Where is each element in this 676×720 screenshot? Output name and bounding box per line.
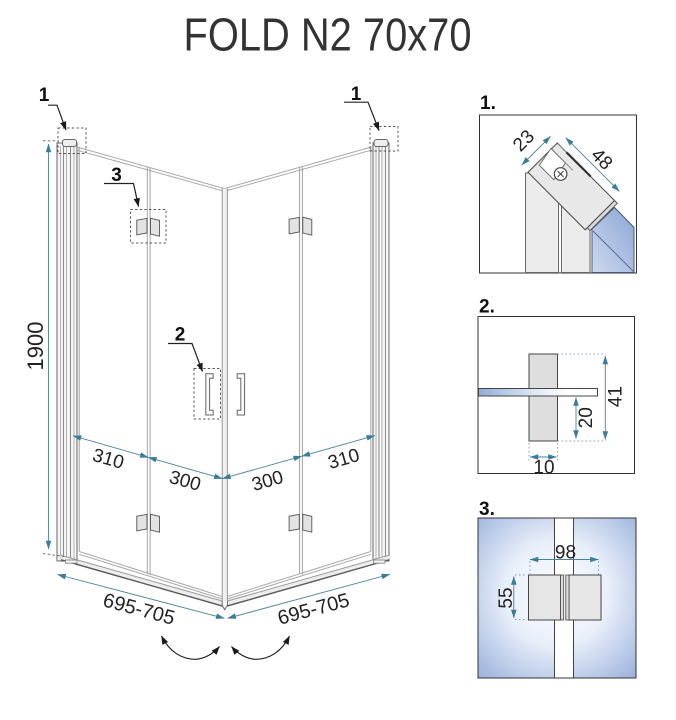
svg-text:1.: 1. [480, 93, 496, 114]
svg-text:3: 3 [111, 165, 122, 186]
svg-text:2: 2 [175, 325, 186, 346]
svg-text:310: 310 [326, 445, 362, 474]
svg-text:20: 20 [576, 407, 597, 428]
svg-text:FOLD N2 70x70: FOLD N2 70x70 [184, 9, 472, 61]
svg-text:2.: 2. [479, 297, 495, 318]
svg-text:300: 300 [250, 467, 286, 496]
svg-text:41: 41 [606, 386, 627, 407]
svg-text:55: 55 [496, 587, 517, 608]
svg-text:1: 1 [39, 85, 50, 106]
svg-text:695-705: 695-705 [275, 589, 352, 629]
svg-text:98: 98 [555, 543, 576, 564]
svg-text:3.: 3. [479, 499, 495, 520]
svg-text:10: 10 [533, 458, 554, 479]
svg-text:1900: 1900 [23, 322, 48, 371]
